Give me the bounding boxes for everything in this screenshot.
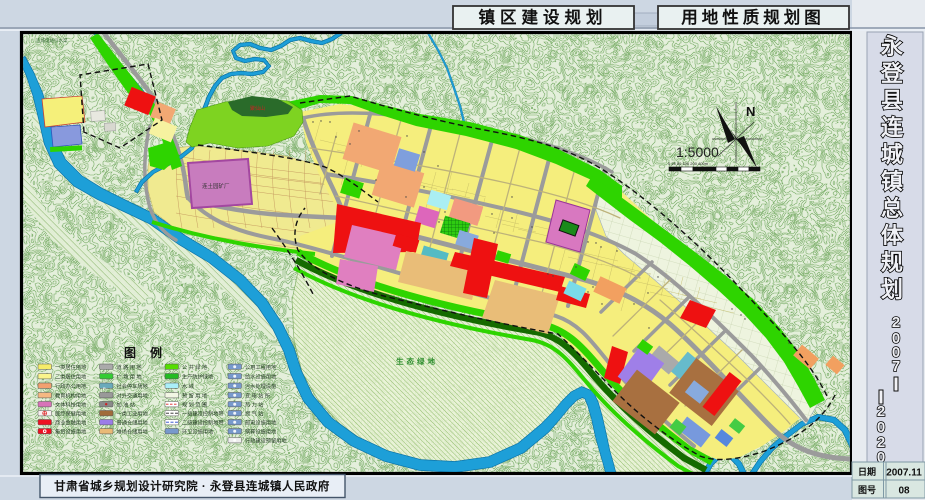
svg-text:集贸设施用地: 集贸设施用地 (55, 428, 86, 436)
svg-text:一类工业用地: 一类工业用地 (117, 410, 148, 418)
svg-text:燃 气 站: 燃 气 站 (245, 410, 263, 418)
svg-text:堆场仓储用地: 堆场仓储用地 (117, 428, 148, 436)
svg-text:行政建设预留用地: 行政建设预留用地 (245, 437, 287, 445)
svg-text:图例: 图例 (124, 345, 176, 360)
svg-text:镇区建设规划: 镇区建设规划 (479, 7, 608, 27)
svg-text:08: 08 (898, 486, 910, 497)
svg-text:一类居住用地: 一类居住用地 (55, 363, 86, 371)
svg-text:N: N (746, 104, 755, 119)
svg-text:文体科技用地: 文体科技用地 (55, 401, 86, 409)
svg-text:7: 7 (892, 358, 900, 375)
svg-text:商业金融用地: 商业金融用地 (55, 419, 86, 427)
svg-text:热 力 站: 热 力 站 (245, 401, 263, 409)
svg-text:广 场 用 地: 广 场 用 地 (117, 373, 142, 381)
svg-text:二级建设控制地带: 二级建设控制地带 (182, 419, 224, 427)
svg-text:总: 总 (881, 196, 903, 221)
svg-text:污水处理设施: 污水处理设施 (245, 382, 276, 390)
svg-text:水 域: 水 域 (182, 382, 194, 390)
svg-text:普通仓储用地: 普通仓储用地 (117, 419, 148, 427)
svg-text:生产防护绿地: 生产防护绿地 (182, 373, 213, 381)
svg-text:二类居住用地: 二类居住用地 (55, 373, 86, 381)
svg-text:加 油 站: 加 油 站 (117, 401, 135, 409)
svg-text:邮电设施用地: 邮电设施用地 (245, 419, 276, 427)
svg-text:划: 划 (881, 277, 903, 302)
svg-text:图号: 图号 (858, 485, 876, 495)
svg-text:2: 2 (892, 314, 900, 331)
svg-text:殡葬设施用地: 殡葬设施用地 (245, 428, 276, 436)
svg-text:P: P (103, 386, 106, 391)
svg-text:体: 体 (881, 223, 904, 248)
svg-text:变 电 站 所: 变 电 站 所 (245, 392, 270, 400)
svg-text:道 路 用 地: 道 路 用 地 (117, 363, 142, 371)
svg-text:社会停车场地: 社会停车场地 (117, 382, 148, 390)
svg-text:用地性质规划图: 用地性质规划图 (681, 7, 825, 27)
svg-text:永: 永 (881, 34, 903, 59)
svg-text:县: 县 (881, 88, 903, 113)
svg-text:规: 规 (881, 250, 903, 275)
svg-text:公用工程用地: 公用工程用地 (245, 363, 276, 371)
svg-text:0 25 50 100 200: 0 25 50 100 200 400m (668, 161, 709, 166)
svg-text:2007.11: 2007.11 (886, 468, 922, 479)
svg-text:行政办公用地: 行政办公用地 (55, 382, 86, 390)
svg-text:对外交通用地: 对外交通用地 (117, 392, 148, 400)
svg-text:城: 城 (881, 142, 903, 167)
svg-text:聚仙山: 聚仙山 (250, 105, 265, 112)
svg-text:日期: 日期 (858, 466, 876, 477)
svg-text:公 共 绿 地: 公 共 绿 地 (182, 363, 207, 371)
svg-text:预 留 用 地: 预 留 用 地 (182, 392, 207, 400)
svg-text:登: 登 (880, 61, 904, 86)
svg-text:生态绿地: 生态绿地 (396, 356, 438, 366)
svg-text:一级建设控制地带: 一级建设控制地带 (182, 410, 224, 418)
svg-text:环卫设施用地: 环卫设施用地 (182, 428, 213, 436)
svg-text:教育机构用地: 教育机构用地 (55, 392, 86, 400)
svg-text:镇: 镇 (881, 169, 903, 194)
svg-text:甘肃省城乡规划设计研究院 · 永登县连城镇人民政府: 甘肃省城乡规划设计研究院 · 永登县连城镇人民政府 (54, 479, 330, 493)
svg-text:连: 连 (881, 115, 904, 140)
svg-text:连城电站引水渠: 连城电站引水渠 (36, 37, 68, 44)
svg-text:2: 2 (877, 403, 885, 420)
svg-text:给水设施用地: 给水设施用地 (245, 373, 276, 381)
svg-text:1:5000: 1:5000 (676, 144, 719, 160)
svg-text:连土园矿厂: 连土园矿厂 (202, 182, 230, 190)
svg-text:医疗保健用地: 医疗保健用地 (55, 410, 86, 418)
svg-text:规 划 范 围: 规 划 范 围 (182, 401, 207, 409)
